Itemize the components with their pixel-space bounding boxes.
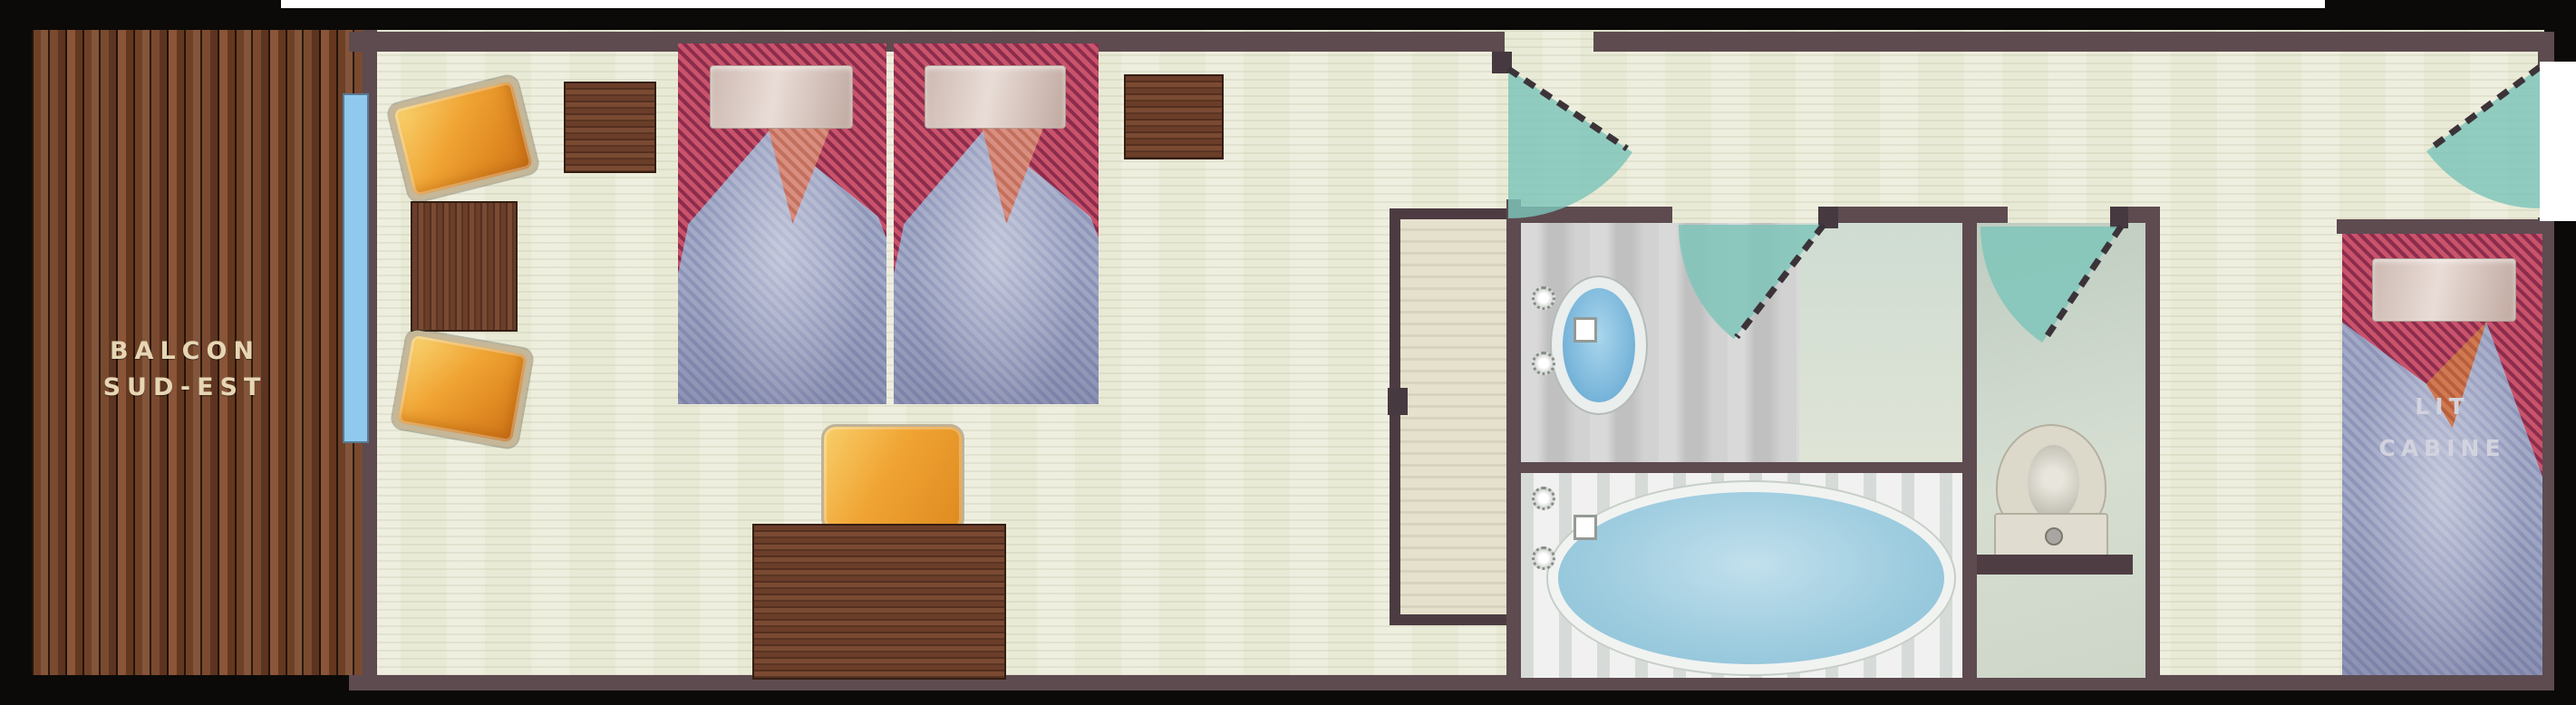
- cabin-doorway-opening: [2540, 62, 2576, 221]
- entry-door-arc: [1508, 69, 1632, 218]
- door-swing-arcs: [0, 0, 2576, 705]
- floor-plan: BALCON SUD-EST: [0, 0, 2576, 705]
- cabin-entry-door-arc: [2426, 67, 2540, 208]
- scan-margin-top: [281, 0, 2325, 8]
